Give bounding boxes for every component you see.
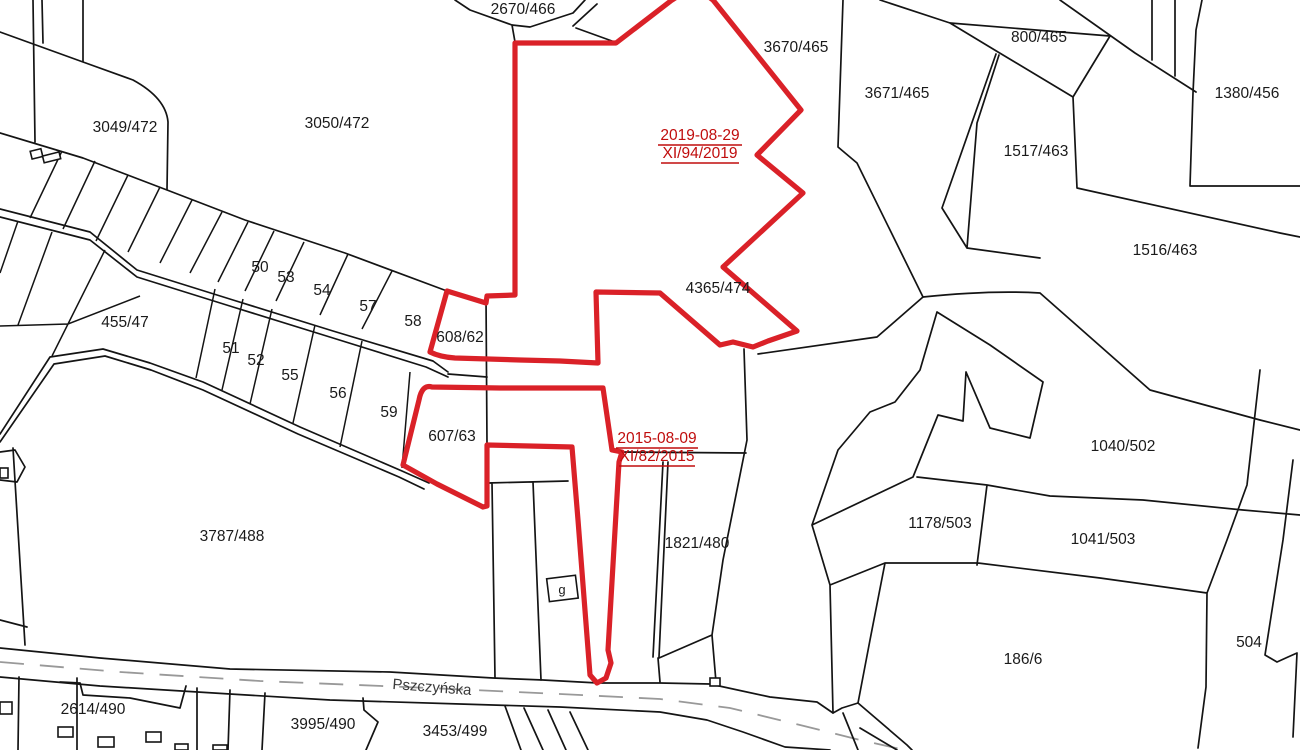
parcel-label-2614-490: 2614/490 — [61, 701, 126, 718]
cadastral-map-svg[interactable]: 3049/472 3050/472 2670/466 3670/465 3671… — [0, 0, 1300, 750]
parcel-label-186-6: 186/6 — [1004, 651, 1043, 668]
building-footprint — [58, 727, 73, 737]
parcel-label-3453-499: 3453/499 — [423, 723, 488, 740]
boundaries-south — [0, 448, 897, 750]
parcel-label-3671-465: 3671/465 — [865, 85, 930, 102]
road-lower — [0, 349, 429, 489]
parcel-label-58: 58 — [404, 313, 421, 330]
parcel-label-3049-472: 3049/472 — [93, 119, 158, 136]
building-footprint — [213, 745, 227, 750]
parcel-label-608-62: 608/62 — [436, 329, 483, 346]
road-culvert-marker — [710, 678, 720, 686]
parcel-label-504: 504 — [1236, 634, 1262, 651]
parcel-label-1380-456: 1380/456 — [1215, 85, 1280, 102]
parcel-label-57: 57 — [359, 298, 376, 315]
parcel-label-3050-472: 3050/472 — [305, 115, 370, 132]
road-upper — [0, 209, 487, 377]
parcel-label-51: 51 — [222, 340, 239, 357]
parcel-label-455-47: 455/47 — [101, 314, 148, 331]
parcel-label-3670-465: 3670/465 — [764, 39, 829, 56]
boundaries-east — [758, 292, 1300, 748]
parcel-label-55: 55 — [281, 367, 298, 384]
parcel-label-50: 50 — [251, 259, 269, 276]
annotation-date-2019: 2019-08-29 — [660, 127, 739, 144]
parcel-label-4365-474: 4365/474 — [686, 280, 751, 297]
annotation-2015: 2015-08-09 XI/82/2015 — [616, 430, 698, 466]
building-footprint — [175, 744, 188, 750]
parcel-label-3787-488: 3787/488 — [200, 528, 265, 545]
parcel-label-1516-463: 1516/463 — [1133, 242, 1198, 259]
parcel-labels: 3049/472 3050/472 2670/466 3670/465 3671… — [61, 1, 1280, 740]
annotation-date-2015: 2015-08-09 — [617, 430, 696, 447]
strip-parcel-dividers-lower — [0, 221, 410, 468]
parcel-label-1040-502: 1040/502 — [1091, 438, 1156, 455]
parcel-label-53: 53 — [277, 269, 294, 286]
street-name-label: Pszczyńska — [392, 676, 473, 699]
parcel-label-56: 56 — [329, 385, 346, 402]
building-usage-label-g: g — [558, 582, 565, 597]
parcel-label-1041-503: 1041/503 — [1071, 531, 1136, 548]
parcel-label-1517-463: 1517/463 — [1004, 143, 1069, 160]
strip-parcel-dividers-upper — [30, 151, 392, 329]
parcel-label-607-63: 607/63 — [428, 428, 475, 445]
parcel-label-3995-490: 3995/490 — [291, 716, 356, 733]
parcel-label-1178-503: 1178/503 — [908, 515, 972, 532]
parcel-label-52: 52 — [247, 352, 264, 369]
building-footprint — [0, 702, 12, 714]
annotation-case-2015: XI/82/2015 — [620, 448, 695, 465]
annotation-2019: 2019-08-29 XI/94/2019 — [658, 127, 742, 163]
building-footprint — [146, 732, 161, 742]
building-footprint — [0, 468, 8, 478]
building-footprint — [43, 152, 61, 163]
building-footprint — [98, 737, 114, 747]
map-canvas[interactable]: 3049/472 3050/472 2670/466 3670/465 3671… — [0, 0, 1300, 750]
parcel-label-1821-480: 1821/480 — [665, 535, 730, 552]
annotation-case-2019: XI/94/2019 — [663, 145, 738, 162]
parcel-label-2670-466: 2670/466 — [491, 1, 556, 18]
parcel-label-54: 54 — [313, 282, 331, 299]
parcel-label-59: 59 — [380, 404, 397, 421]
building-footprint — [30, 149, 43, 159]
parcel-label-800-465: 800/465 — [1011, 29, 1067, 46]
